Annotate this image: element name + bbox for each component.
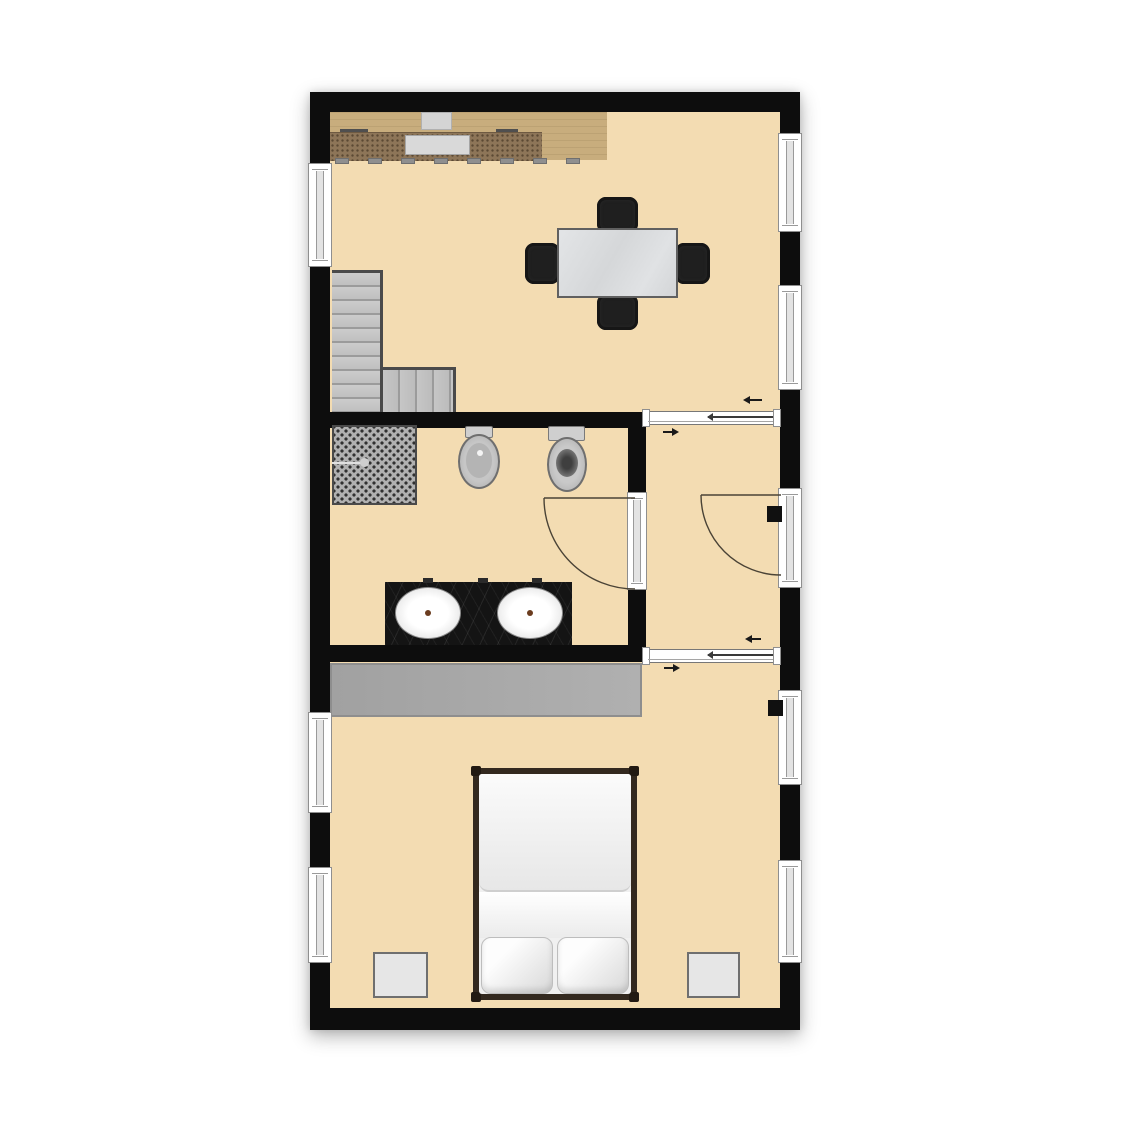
window-right-4 [778,860,802,963]
nightstand-right [687,952,740,998]
staircase-lower-flight [383,367,456,412]
wall-bottom [310,1008,800,1030]
kitchen-sink [405,135,470,155]
window-left-1 [308,163,332,267]
pillow-left [481,937,553,994]
vanity-faucet [478,578,488,583]
entry-door-handle [767,506,782,522]
shower [332,425,417,505]
toilet [547,437,587,492]
entry-door-leaf [778,488,802,588]
window-right-2 [778,285,802,390]
cabinet-handle [401,158,415,164]
wall-bathroom-bedroom [330,645,646,662]
dining-chair-right [675,243,710,284]
counter-handle [340,129,368,132]
bedroom-door-handle [768,700,783,716]
cabinet-handle [368,158,382,164]
cabinet-handle [467,158,481,164]
window-glass [316,171,324,259]
window-left-3 [308,867,332,963]
sink-basin-right [497,587,563,639]
window-glass [316,720,324,805]
nightstand-left [373,952,428,998]
dining-chair-bottom [597,294,638,330]
vanity-faucet [532,578,542,583]
window-glass [786,698,794,777]
bed-post [629,992,639,1002]
window-left-2 [308,712,332,813]
sliding-door-rail [648,659,775,660]
window-glass [786,293,794,382]
bathroom-door-leaf [627,492,647,590]
bed-folded-blanket [479,892,631,938]
window-right-1 [778,133,802,232]
sliding-door-rail [648,421,775,422]
window-glass [786,141,794,224]
floorplan-canvas [0,0,1122,1122]
cabinet-handle [434,158,448,164]
sliding-door-panel [708,416,773,418]
sink-basin-left [395,587,461,639]
cabinet-handle [500,158,514,164]
floor-plan [310,92,800,1030]
sliding-door-hallway-top [643,411,780,425]
cabinet-handle [335,158,349,164]
kitchen-cooktop [421,112,452,130]
cabinet-handle [533,158,547,164]
dining-chair-left [525,243,560,284]
slide-direction-arrow [663,431,677,433]
door-panel [786,496,794,580]
door-panel [633,500,641,582]
dining-table [557,228,678,298]
wall-top [310,92,800,112]
bidet [458,434,500,489]
slide-direction-arrow [664,667,678,669]
window-glass [786,868,794,955]
sliding-door-panel [708,654,773,656]
counter-handle [496,129,518,132]
bed-duvet [479,774,631,892]
slide-direction-arrow [747,638,761,640]
staircase-upper-flight [332,270,383,412]
sliding-door-hallway-bottom [643,649,780,663]
pillow-right [557,937,629,994]
shower-head [360,458,369,467]
slide-direction-arrow [745,399,762,401]
cabinet-handle [566,158,580,164]
vanity-faucet [423,578,433,583]
window-glass [316,875,324,955]
wardrobe [330,663,642,717]
